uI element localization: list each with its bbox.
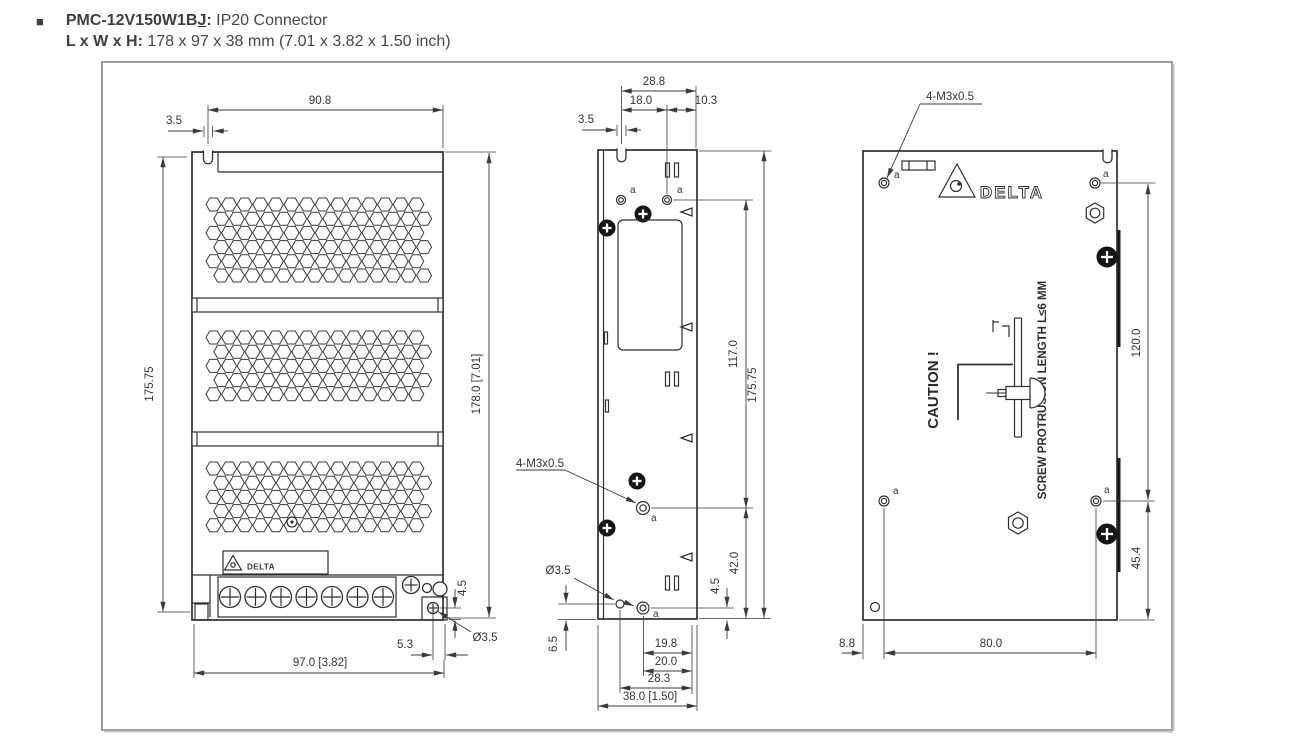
separator-bar-2 [192, 432, 443, 446]
callout-mounting-holes: 4-M3x0.5 [926, 91, 974, 103]
dim-hole-dia: Ø3.5 [546, 565, 571, 577]
dim-b4: 38.0 [1.50] [623, 691, 677, 703]
back-view: DELTA a a a a [839, 91, 1155, 659]
svg-text:a: a [894, 170, 900, 181]
edge-hole [433, 582, 447, 596]
keyhole-notch [204, 150, 213, 164]
led-indicator [423, 584, 432, 593]
dim-top-width: 90.8 [309, 95, 331, 107]
keyhole-notch [617, 148, 626, 162]
datasheet-page: ■ PMC-12V150W1BJ: IP20 Connector L x W x… [0, 0, 1306, 751]
dim-height-right: 178.0 [7.01] [471, 354, 483, 415]
dim-hole-offset: 5.3 [397, 639, 413, 651]
svg-text:a: a [1103, 169, 1109, 180]
dim-ear-height: 4.5 [457, 580, 469, 596]
dim-edge-offset: 10.3 [695, 95, 717, 107]
dim-hole-span-y: 120.0 [1131, 329, 1143, 358]
svg-text:a: a [893, 486, 899, 497]
dim-height-total: 175.75 [747, 367, 759, 402]
svg-text:a: a [1104, 485, 1110, 496]
dim-hole-span-x: 80.0 [980, 638, 1002, 650]
dim-bottom-width: 97.0 [3.82] [293, 657, 347, 669]
dim-hole-dia: Ø3.5 [473, 632, 498, 644]
separator-bar-1 [192, 298, 443, 312]
dim-ear-height: 4.5 [710, 578, 722, 594]
dim-bottom-hole-y: 6.5 [548, 636, 560, 652]
svg-text:a: a [677, 185, 683, 196]
dim-height-left: 175.75 [144, 366, 156, 401]
dim-notch-width: 3.5 [578, 114, 594, 126]
plate-brand-text: DELTA [247, 563, 275, 572]
brand-wordmark: DELTA [980, 183, 1044, 202]
adjust-potentiometer [403, 577, 420, 594]
dim-edge-to-hole-x: 8.8 [839, 638, 855, 650]
dim-notch-width: 3.5 [166, 115, 182, 127]
dim-b2: 20.0 [655, 656, 677, 668]
dimension-drawing: DELTA [0, 0, 1306, 751]
svg-text:a: a [651, 513, 657, 524]
svg-text:a: a [630, 185, 636, 196]
dim-b3: 28.3 [648, 673, 670, 685]
dim-hole-to-hole: 117.0 [728, 340, 740, 368]
keyhole-notch [1103, 149, 1112, 163]
caution-title: CAUTION ! [925, 351, 942, 429]
dim-hole-to-bottom: 45.4 [1131, 546, 1143, 569]
dim-hole-offset-x: 18.0 [630, 95, 652, 107]
callout-mounting-holes: 4-M3x0.5 [516, 458, 564, 470]
svg-text:a: a [653, 609, 659, 620]
dim-b1: 19.8 [655, 638, 677, 650]
dim-hole-to-bottom: 42.0 [729, 552, 741, 574]
dim-depth-total: 28.8 [643, 76, 665, 88]
